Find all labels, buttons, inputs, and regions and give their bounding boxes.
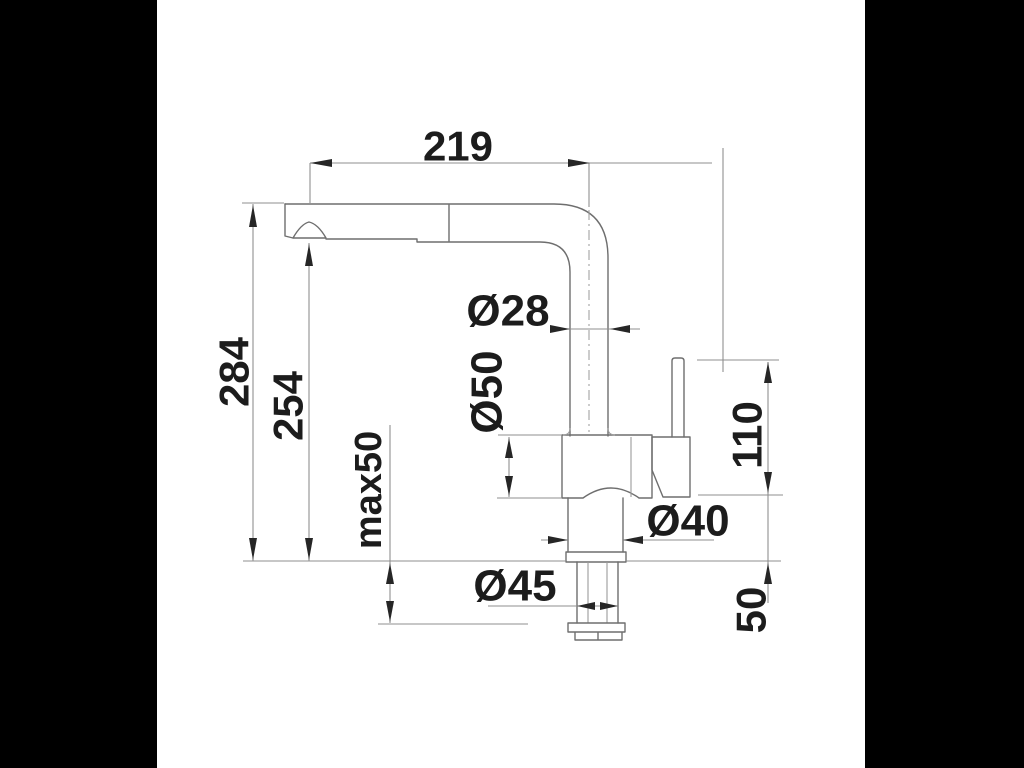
aerator-dome — [293, 222, 326, 238]
arrow-254-up — [305, 244, 313, 266]
dim-label-spout-height: 254 — [265, 370, 312, 441]
spout-tip — [285, 204, 293, 238]
dim-label-overall-height: 284 — [211, 336, 258, 407]
arrow-d50-down — [505, 476, 513, 496]
dim-label-pipe-diameter: Ø28 — [466, 287, 549, 336]
arrow-max50-up — [386, 563, 394, 584]
faucet-dimension-drawing: 219 284 254 max50 Ø28 Ø50 Ø40 Ø45 110 50 — [157, 0, 865, 768]
body-fillet-left — [563, 428, 570, 435]
arrow-d50-up — [505, 438, 513, 458]
arrow-284-down — [249, 538, 257, 560]
arrow-110-down — [764, 472, 772, 493]
screenshot-stage: 219 284 254 max50 Ø28 Ø50 Ø40 Ø45 110 50 — [0, 0, 1024, 768]
shank-inner — [588, 562, 607, 623]
arrow-110-up — [764, 362, 772, 383]
arrow-254-down — [305, 538, 313, 560]
drawing-paper: 219 284 254 max50 Ø28 Ø50 Ø40 Ø45 110 50 — [157, 0, 865, 768]
arrow-d28-right — [610, 325, 630, 333]
arrow-d40-left — [548, 536, 568, 544]
base-column — [568, 498, 623, 552]
dim-label-max-counter-thickness: max50 — [348, 431, 390, 549]
dimension-lines — [242, 148, 783, 624]
dim-label-mounting-hole-diameter: Ø45 — [473, 562, 556, 611]
arrow-284-up — [249, 205, 257, 227]
dim-label-handle-height: 110 — [724, 401, 771, 469]
dimension-labels: 219 284 254 max50 Ø28 Ø50 Ø40 Ø45 110 50 — [211, 123, 775, 634]
arrow-50-up — [764, 563, 772, 584]
handle-lever — [672, 358, 684, 437]
handle-boss — [652, 437, 690, 497]
arrow-219-right — [568, 159, 590, 167]
arrow-d45-right — [600, 602, 618, 610]
mounting-nut — [568, 623, 625, 640]
arrow-219-left — [310, 159, 332, 167]
body-outline — [562, 435, 652, 498]
dim-label-base-diameter: Ø40 — [646, 497, 729, 546]
arrow-d28-left — [550, 325, 570, 333]
dim-label-spout-reach: 219 — [423, 123, 493, 170]
arrow-max50-down — [386, 601, 394, 622]
body-fillet-right — [608, 428, 615, 435]
spout-inner-path — [326, 239, 570, 436]
arrow-d45-left — [577, 602, 595, 610]
arrow-d40-right — [623, 536, 643, 544]
dim-label-body-diameter: Ø50 — [463, 350, 512, 433]
shank-outer — [577, 562, 618, 623]
base-flange — [566, 552, 626, 562]
dim-label-base-section-height: 50 — [728, 587, 775, 634]
